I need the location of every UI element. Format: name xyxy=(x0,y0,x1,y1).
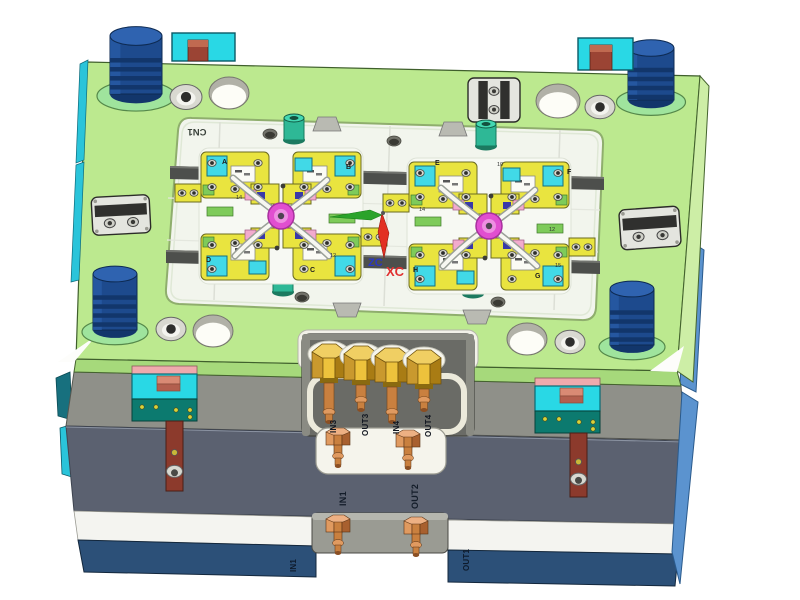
cavity-number: 12 xyxy=(549,227,555,233)
cavity-number: 14 xyxy=(419,207,425,213)
cavity-number: 14 xyxy=(236,195,242,201)
cavity-number: 10 xyxy=(497,162,503,168)
cavity-letter: G xyxy=(535,273,541,280)
latch-lock-block xyxy=(91,195,151,236)
port-label-mid-out2: OUT2 xyxy=(410,484,420,509)
front-fitting-bracket xyxy=(298,330,478,436)
bottom-fitting-bracket xyxy=(312,513,448,557)
port-label-in3: IN3 xyxy=(329,419,338,433)
cavity-letter: A xyxy=(222,159,227,166)
port-label-bottom-in1: IN1 xyxy=(289,559,298,572)
mold-assembly-render: CN1 IN3 OUT3 IN4 OUT4 IN1 OUT2 IN1 OUT1 … xyxy=(0,0,800,600)
port-label-out3: OUT3 xyxy=(361,413,370,436)
cavity-letter: D xyxy=(206,257,211,264)
cavity-number: 15 xyxy=(555,263,561,269)
cavity-letter: H xyxy=(413,267,418,274)
wcs-x-label: XC xyxy=(386,264,405,279)
cavity-number: 12 xyxy=(330,253,336,259)
cavity-letter: F xyxy=(567,169,572,176)
cavity-letter: E xyxy=(435,160,440,167)
pocket-corner-code: CN1 xyxy=(187,126,207,137)
port-label-mid-in1: IN1 xyxy=(338,491,348,506)
port-label-bottom-out1: OUT1 xyxy=(462,549,471,571)
port-label-out4: OUT4 xyxy=(424,414,433,437)
cad-viewport: CN1 IN3 OUT3 IN4 OUT4 IN1 OUT2 IN1 OUT1 … xyxy=(0,0,800,600)
cavity-letter: C xyxy=(310,267,315,274)
cavity-letter: B xyxy=(346,164,351,171)
port-label-in4: IN4 xyxy=(392,420,401,434)
wcs-z-label: ZC xyxy=(368,257,383,269)
latch-lock-block xyxy=(619,206,682,250)
